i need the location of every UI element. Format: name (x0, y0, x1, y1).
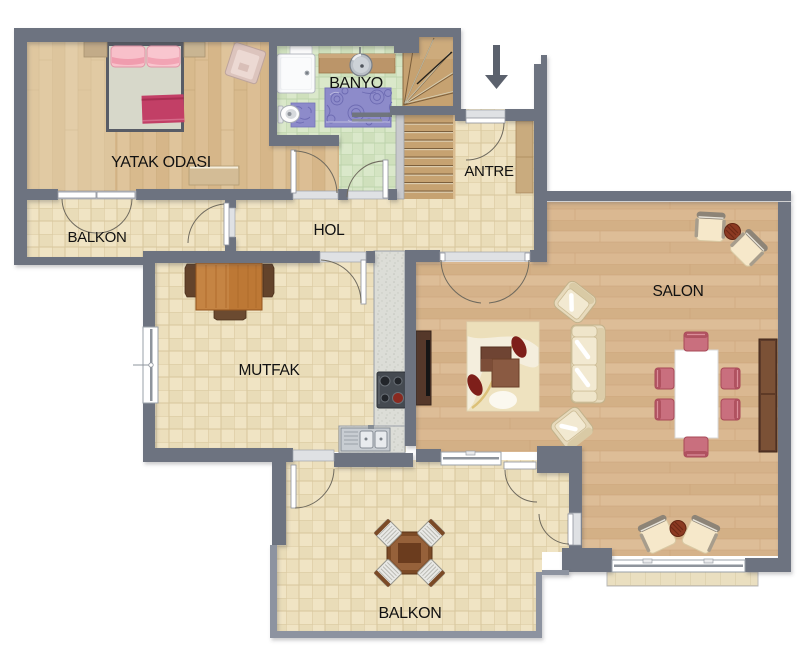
svg-text:BALKON: BALKON (378, 605, 441, 622)
svg-text:BANYO: BANYO (329, 75, 383, 92)
svg-text:ANTRE: ANTRE (464, 163, 514, 180)
svg-text:YATAK ODASI: YATAK ODASI (111, 154, 211, 171)
svg-text:HOL: HOL (314, 222, 346, 239)
svg-text:BALKON: BALKON (67, 229, 126, 246)
svg-text:SALON: SALON (652, 283, 703, 300)
svg-text:MUTFAK: MUTFAK (238, 362, 300, 379)
